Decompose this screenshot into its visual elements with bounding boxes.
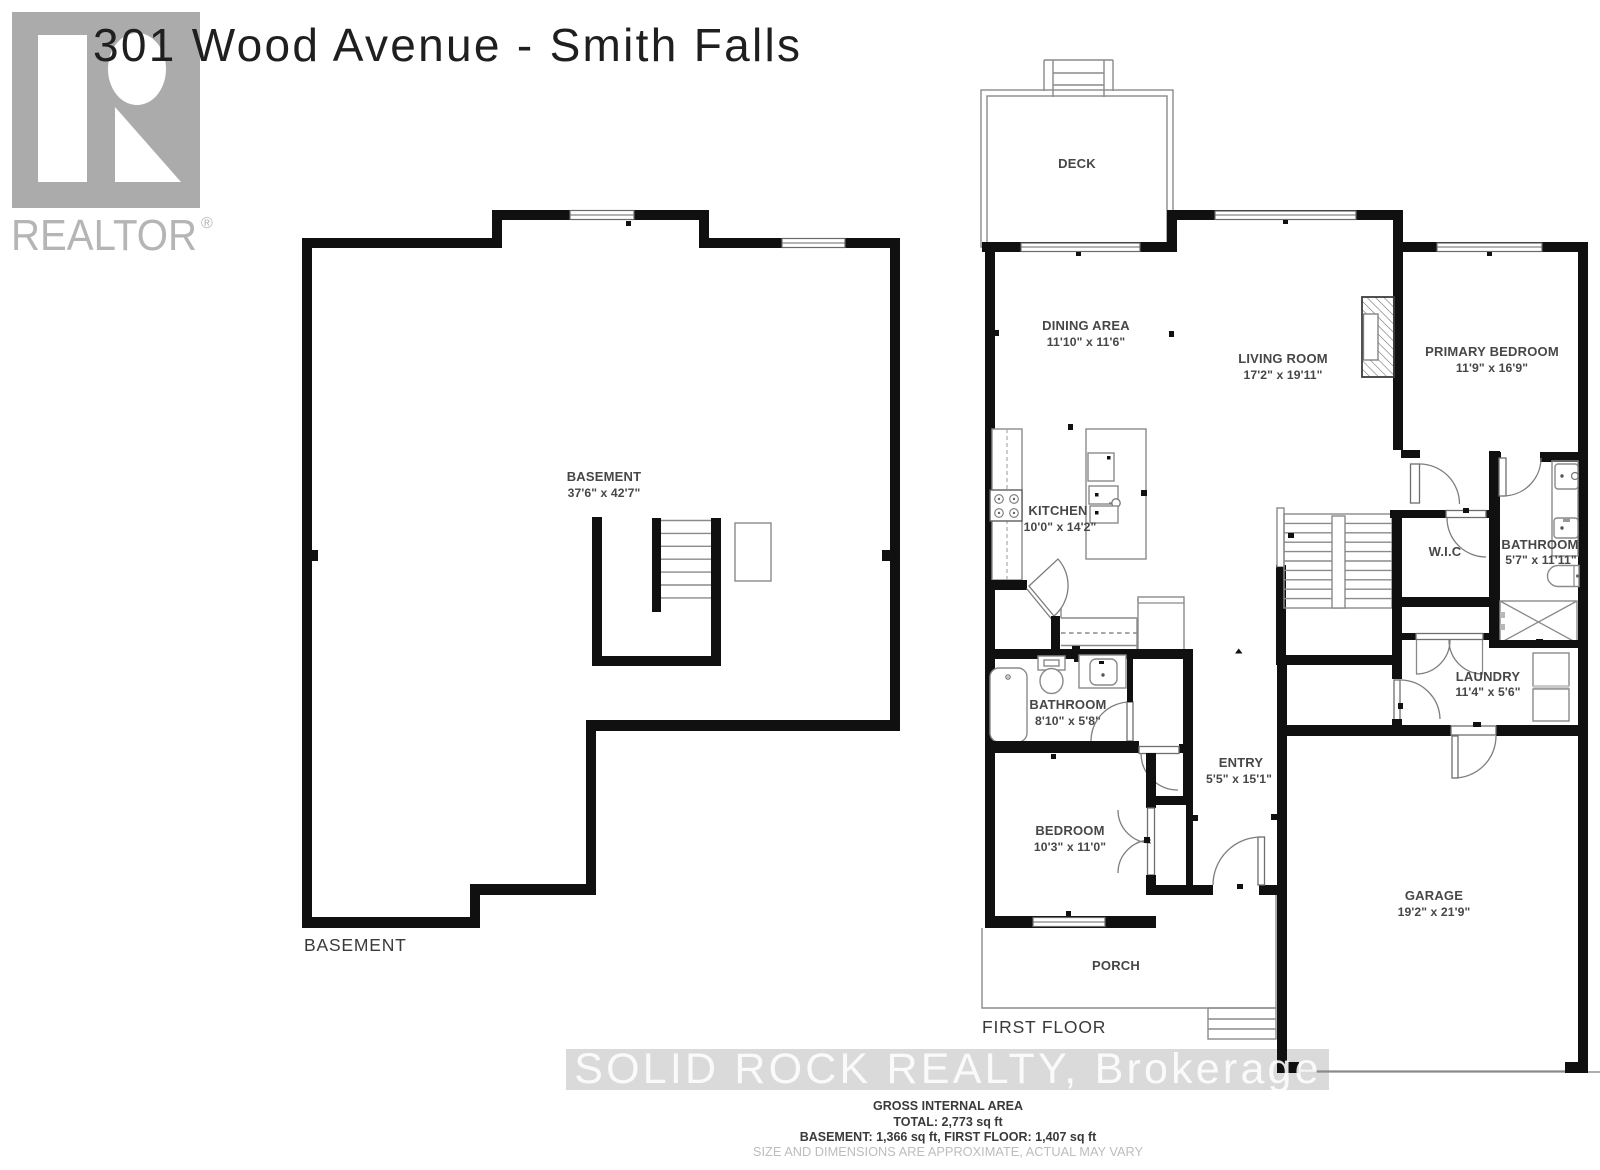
svg-text:11'9" x 16'9": 11'9" x 16'9" <box>1456 361 1528 375</box>
svg-text:LAUNDRY: LAUNDRY <box>1456 669 1521 684</box>
svg-text:10'3" x 11'0": 10'3" x 11'0" <box>1034 840 1106 854</box>
svg-text:BEDROOM: BEDROOM <box>1035 823 1104 838</box>
svg-text:37'6" x 42'7": 37'6" x 42'7" <box>568 486 641 500</box>
svg-text:GROSS INTERNAL AREA: GROSS INTERNAL AREA <box>873 1099 1023 1113</box>
svg-text:SIZE AND DIMENSIONS ARE APPROX: SIZE AND DIMENSIONS ARE APPROXIMATE, ACT… <box>753 1144 1144 1159</box>
svg-text:BASEMENT: 1,366 sq ft, FIRST F: BASEMENT: 1,366 sq ft, FIRST FLOOR: 1,40… <box>800 1130 1097 1144</box>
svg-text:BASEMENT: BASEMENT <box>304 935 407 955</box>
svg-text:ENTRY: ENTRY <box>1219 755 1264 770</box>
svg-text:GARAGE: GARAGE <box>1405 888 1463 903</box>
svg-text:W.I.C: W.I.C <box>1429 544 1462 559</box>
svg-text:BASEMENT: BASEMENT <box>567 469 642 484</box>
svg-text:PORCH: PORCH <box>1092 958 1140 973</box>
svg-text:SOLID ROCK REALTY, Brokerage: SOLID ROCK REALTY, Brokerage <box>574 1045 1322 1093</box>
svg-text:®: ® <box>201 215 213 232</box>
svg-text:5'5" x 15'1": 5'5" x 15'1" <box>1206 772 1272 786</box>
svg-text:TOTAL: 2,773 sq ft: TOTAL: 2,773 sq ft <box>893 1115 1003 1129</box>
svg-text:17'2" x 19'11": 17'2" x 19'11" <box>1243 368 1322 382</box>
svg-text:BATHROOM: BATHROOM <box>1501 537 1578 552</box>
svg-text:LIVING ROOM: LIVING ROOM <box>1238 351 1328 366</box>
svg-text:FIRST FLOOR: FIRST FLOOR <box>982 1017 1106 1037</box>
svg-text:KITCHEN: KITCHEN <box>1028 503 1087 518</box>
svg-text:DECK: DECK <box>1058 156 1096 171</box>
svg-text:DINING AREA: DINING AREA <box>1042 318 1130 333</box>
svg-text:11'10" x 11'6": 11'10" x 11'6" <box>1047 335 1125 349</box>
svg-text:PRIMARY BEDROOM: PRIMARY BEDROOM <box>1425 344 1559 359</box>
svg-text:11'4" x 5'6": 11'4" x 5'6" <box>1455 685 1520 699</box>
svg-text:REALTOR: REALTOR <box>11 211 197 260</box>
svg-text:10'0" x 14'2": 10'0" x 14'2" <box>1024 520 1097 534</box>
svg-text:BATHROOM: BATHROOM <box>1029 697 1106 712</box>
svg-text:19'2" x 21'9": 19'2" x 21'9" <box>1398 905 1471 919</box>
svg-text:8'10" x 5'8": 8'10" x 5'8" <box>1035 714 1101 728</box>
svg-text:301 Wood Avenue - Smith Falls: 301 Wood Avenue - Smith Falls <box>93 19 802 71</box>
